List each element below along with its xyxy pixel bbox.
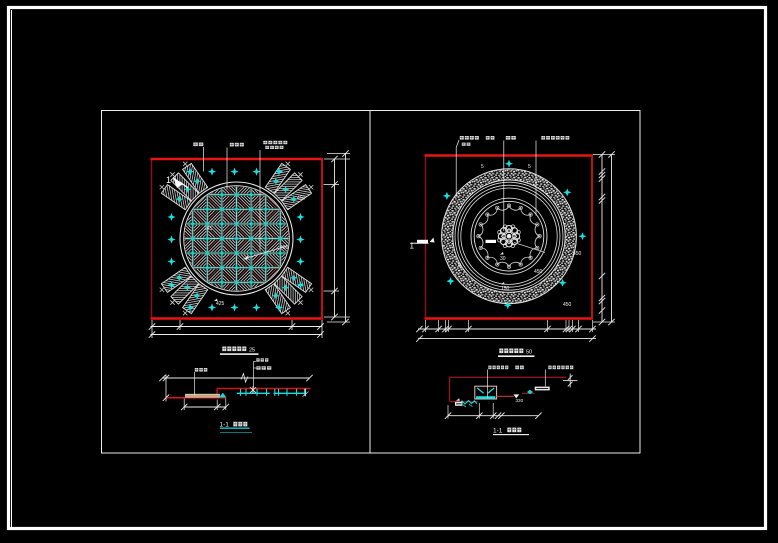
svg-text:1-1: 1-1 bbox=[493, 428, 503, 435]
svg-text:5: 5 bbox=[528, 164, 531, 170]
svg-text:450: 450 bbox=[573, 251, 582, 257]
svg-text:150: 150 bbox=[501, 286, 510, 292]
svg-text:330: 330 bbox=[516, 398, 524, 403]
svg-text:25: 25 bbox=[249, 348, 255, 354]
svg-text:450: 450 bbox=[297, 196, 306, 202]
svg-text:5: 5 bbox=[481, 164, 484, 170]
svg-text:400: 400 bbox=[280, 245, 289, 251]
svg-text:450: 450 bbox=[534, 269, 543, 275]
svg-text:450: 450 bbox=[563, 302, 572, 308]
svg-text:1: 1 bbox=[166, 175, 171, 185]
svg-text:1-1: 1-1 bbox=[220, 422, 230, 429]
svg-text:425: 425 bbox=[216, 301, 225, 307]
svg-text:245: 245 bbox=[204, 226, 213, 232]
svg-text:30: 30 bbox=[500, 256, 506, 262]
svg-text:50: 50 bbox=[526, 350, 532, 356]
